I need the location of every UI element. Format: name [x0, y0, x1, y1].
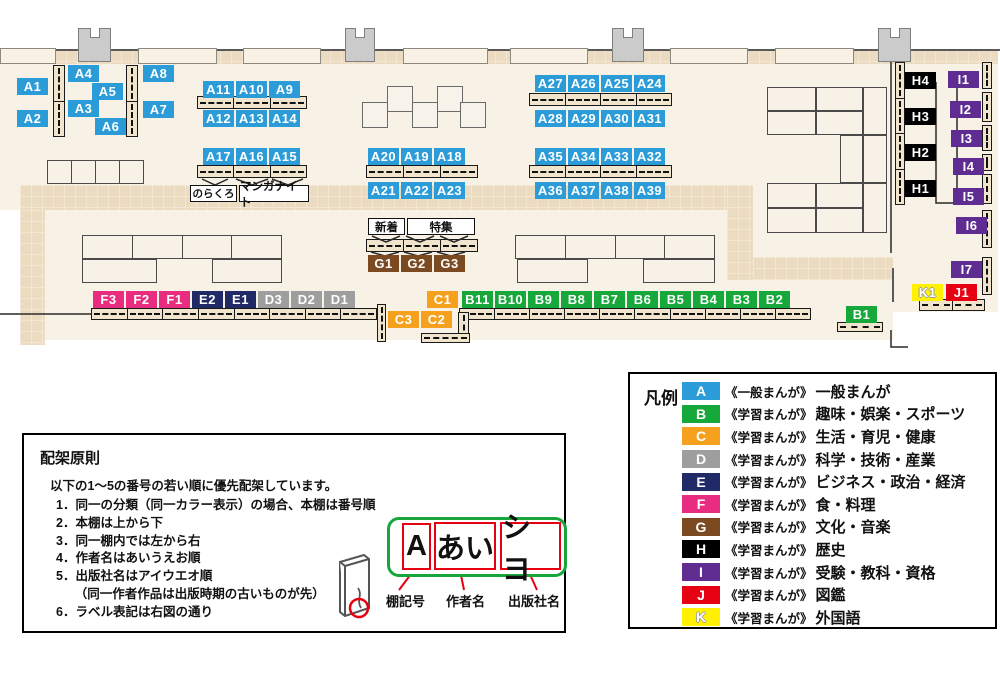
label-diagram-publisher: シヨ — [500, 522, 561, 570]
shelf-strip-segment — [530, 94, 565, 105]
shelf-strip-i7-wall — [982, 257, 992, 295]
shelf-label-A27: A27 — [535, 75, 566, 92]
table-cell — [841, 136, 862, 182]
shelf-label-A19: A19 — [401, 148, 432, 165]
shelf-strip-segment — [983, 93, 991, 121]
shelf-label-H3: H3 — [905, 108, 936, 125]
shelf-label-A14: A14 — [269, 110, 300, 127]
shelf-label-A2: A2 — [17, 110, 48, 127]
legend-chip-D: D — [682, 450, 720, 468]
shelf-block — [863, 183, 887, 233]
table-cell — [48, 161, 71, 183]
legend-category: 受験・教科・資格 — [816, 562, 936, 583]
pillar-notch — [355, 28, 365, 38]
shelf-label-A30: A30 — [601, 110, 632, 127]
shelf-strip-segment — [127, 309, 163, 319]
legend-row-D: D《学習まんが》科学・技術・産業 — [682, 448, 966, 471]
pillar-notch — [623, 28, 633, 38]
table-cell — [518, 260, 587, 282]
shelf-strip-segment — [636, 166, 672, 177]
wall-shelf — [403, 48, 488, 64]
shelf-label-A9: A9 — [269, 81, 300, 98]
shelf-strip-segment — [198, 309, 234, 319]
walkway-right-horiz — [753, 257, 893, 280]
legend-series: 《学習まんが》 — [725, 517, 813, 536]
legend-chip-E: E — [682, 473, 720, 491]
note-new-arrivals: 新着 — [368, 218, 405, 235]
principles-item: 2．本棚は上から下 — [56, 515, 375, 533]
legend-row-A: A《一般まんが》一般まんが — [682, 380, 966, 403]
shelf-strip-segment — [600, 94, 636, 105]
legend-series: 《学習まんが》 — [725, 608, 813, 627]
shelf-strip-b — [459, 308, 811, 320]
shelf-strip-segment — [269, 309, 305, 319]
shelf-strip-segment — [54, 66, 64, 101]
shelf-label-H1: H1 — [905, 180, 936, 197]
pillar — [878, 28, 911, 62]
legend-category: 一般まんが — [816, 381, 891, 402]
shelf-label-I5: I5 — [953, 188, 984, 205]
legend-row-B: B《学習まんが》趣味・娯楽・スポーツ — [682, 403, 966, 426]
principles-item: 3．同一棚内では左から右 — [56, 533, 375, 551]
legend-chip-F: F — [682, 495, 720, 513]
shelf-strip-segment — [634, 309, 669, 319]
walkway-right-vert — [727, 185, 753, 280]
shelf-label-G1: G1 — [368, 255, 399, 272]
shelf-label-I7: I7 — [951, 261, 982, 278]
shelf-strip-c2-bottom — [421, 333, 470, 343]
shelf-label-A29: A29 — [568, 110, 599, 127]
shelf-label-H2: H2 — [905, 144, 936, 161]
shelf-strip-segment — [983, 155, 991, 170]
book-icon — [328, 550, 388, 628]
table-cell — [132, 236, 182, 258]
shelf-strip-segment — [838, 323, 882, 331]
shelf-label-A23: A23 — [434, 182, 465, 199]
label-diagram-author: あい — [434, 522, 496, 570]
shelf-label-D3: D3 — [258, 291, 289, 308]
table-cell — [83, 236, 132, 258]
caption-author: 作者名 — [446, 591, 485, 610]
shelf-label-A18: A18 — [434, 148, 465, 165]
shelf-strip-segment — [127, 101, 137, 137]
legend-chip-H: H — [682, 540, 720, 558]
shelf-strip-segment — [983, 126, 991, 150]
shelf-strip-segment — [896, 133, 904, 169]
pillar-notch — [90, 28, 100, 38]
legend-series: 《一般まんが》 — [725, 382, 813, 401]
shelf-block — [767, 183, 816, 208]
shelf-strip-a15 — [197, 165, 307, 178]
floor-map-page: のらくろ マンガナイト 新着 特集 A1A2A4A5A3A6A8A7A11A10… — [0, 0, 1000, 700]
label-diagram-shelf-code: A — [402, 523, 431, 570]
shelf-label-H4: H4 — [905, 72, 936, 89]
shelf-strip-b1 — [837, 322, 883, 332]
shelf-label-J1: J1 — [946, 284, 977, 301]
shelf-label-A35: A35 — [535, 148, 566, 165]
shelf-strip-segment — [340, 309, 376, 319]
shelf-label-F1: F1 — [159, 291, 190, 308]
table-cell — [231, 236, 281, 258]
shelf-strip-segment — [705, 309, 740, 319]
shelf-strip-segment — [494, 309, 529, 319]
shelf-label-A8: A8 — [143, 65, 174, 82]
shelf-strip-a18 — [366, 165, 478, 178]
legend-series: 《学習まんが》 — [725, 404, 813, 423]
note-manganight: マンガナイト — [239, 185, 309, 202]
shelf-label-D1: D1 — [324, 291, 355, 308]
shelf-strip-segment — [670, 309, 705, 319]
table-cell — [864, 88, 886, 134]
table-cell — [864, 184, 886, 232]
principles-item: 1．同一の分類（同一カラー表示）の場合、本棚は番号順 — [56, 497, 375, 515]
table-cell — [71, 161, 95, 183]
caption-shelf-code: 棚記号 — [386, 591, 425, 610]
table-block — [515, 235, 715, 259]
shelf-label-F3: F3 — [93, 291, 124, 308]
shelf-strip-segment — [367, 166, 403, 177]
shelf-block — [816, 208, 863, 233]
table-cell — [213, 260, 281, 282]
shelf-label-A17: A17 — [203, 148, 234, 165]
table-cell — [817, 184, 862, 207]
shelf-strip-segment — [896, 169, 904, 205]
legend-series: 《学習まんが》 — [725, 450, 813, 469]
shelf-label-B10: B10 — [495, 291, 526, 308]
shelf-strip-segment — [198, 166, 233, 177]
legend-row-I: I《学習まんが》受験・教科・資格 — [682, 561, 966, 584]
legend-chip-B: B — [682, 405, 720, 423]
shelf-strip-segment — [403, 166, 440, 177]
legend-chip-A: A — [682, 382, 720, 400]
shelf-block — [816, 87, 863, 111]
wall-right-lower — [892, 268, 894, 302]
shelf-strip-a7 — [126, 65, 138, 137]
shelf-label-B8: B8 — [561, 291, 592, 308]
table-block — [47, 160, 144, 184]
table-square — [362, 102, 388, 128]
shelf-strip-segment — [896, 63, 904, 98]
table-block — [643, 259, 715, 283]
shelf-label-I4: I4 — [953, 158, 984, 175]
shelf-block — [840, 135, 863, 183]
legend-row-J: J《学習まんが》図鑑 — [682, 583, 966, 606]
shelf-strip-segment — [162, 309, 198, 319]
wall-shelf — [243, 48, 321, 64]
shelf-block — [863, 135, 887, 183]
legend-category: 図鑑 — [816, 584, 846, 605]
shelf-strip-segment — [127, 66, 137, 101]
shelf-strip-segment — [983, 175, 991, 203]
pillar — [612, 28, 644, 62]
shelf-label-A21: A21 — [368, 182, 399, 199]
shelf-label-A20: A20 — [368, 148, 399, 165]
shelf-strip-segment — [92, 309, 127, 319]
principles-intro: 以下の1～5の番号の若い順に優先配架しています。 — [50, 475, 337, 494]
shelf-label-B1: B1 — [846, 306, 877, 323]
shelf-strip-segment — [54, 101, 64, 137]
legend-category: 歴史 — [816, 539, 846, 560]
shelf-label-C2: C2 — [421, 311, 452, 328]
shelf-strip-segment — [983, 258, 991, 294]
legend-category: 科学・技術・産業 — [816, 449, 936, 470]
shelf-strip-segment — [600, 166, 636, 177]
table-cell — [95, 161, 119, 183]
shelf-strip-segment — [440, 166, 477, 177]
legend-series: 《学習まんが》 — [725, 495, 813, 514]
shelf-label-I1: I1 — [948, 71, 979, 88]
shelf-strip-segment — [234, 309, 270, 319]
legend-row-H: H《学習まんが》歴史 — [682, 538, 966, 561]
table-cell — [768, 184, 815, 207]
shelf-strip-segment — [233, 97, 269, 108]
legend-title: 凡例 — [644, 384, 678, 409]
shelf-strip-segment — [440, 240, 477, 251]
shelf-label-I3: I3 — [951, 130, 982, 147]
shelf-label-A37: A37 — [568, 182, 599, 199]
shelf-label-G2: G2 — [401, 255, 432, 272]
table-cell — [817, 88, 862, 110]
shelf-label-A33: A33 — [601, 148, 632, 165]
shelf-strip-segment — [305, 309, 341, 319]
legend-category: 生活・育児・健康 — [816, 426, 936, 447]
legend-category: 食・料理 — [816, 494, 876, 515]
legend-row-C: C《学習まんが》生活・育児・健康 — [682, 425, 966, 448]
shelf-label-B9: B9 — [528, 291, 559, 308]
shelf-label-A25: A25 — [601, 75, 632, 92]
legend-row-E: E《学習まんが》ビジネス・政治・経済 — [682, 470, 966, 493]
wall-shelf — [775, 48, 854, 64]
note-feature: 特集 — [407, 218, 475, 235]
shelf-label-E2: E2 — [192, 291, 223, 308]
shelf-strip-segment — [422, 334, 469, 342]
walkway-left — [20, 210, 45, 345]
shelf-strip-segment — [270, 166, 306, 177]
table-cell — [182, 236, 232, 258]
table-cell — [516, 236, 565, 258]
shelf-label-A1: A1 — [17, 78, 48, 95]
shelf-strip-g — [366, 239, 478, 252]
wall-shelf — [0, 48, 56, 64]
legend-row-G: G《学習まんが》文化・音楽 — [682, 516, 966, 539]
legend-series: 《学習まんが》 — [725, 427, 813, 446]
table-cell — [83, 260, 156, 282]
table-square — [412, 102, 438, 128]
legend-category: 外国語 — [816, 607, 861, 628]
shelf-strip-i-wall — [982, 125, 992, 151]
wall-shelf — [510, 48, 588, 64]
shelf-strip-segment — [983, 63, 991, 88]
shelf-strip-i-wall — [982, 92, 992, 122]
shelf-strip-segment — [740, 309, 775, 319]
shelf-strip-segment — [367, 240, 403, 251]
shelf-label-A36: A36 — [535, 182, 566, 199]
shelf-strip-c3 — [377, 304, 386, 342]
shelf-block — [767, 87, 816, 111]
shelf-strip-segment — [378, 305, 385, 341]
shelf-label-A34: A34 — [568, 148, 599, 165]
legend-chip-G: G — [682, 518, 720, 536]
legend-series: 《学習まんが》 — [725, 563, 813, 582]
shelf-label-I6: I6 — [956, 217, 987, 234]
shelf-strip-segment — [896, 98, 904, 134]
shelf-label-K1: K1 — [912, 284, 943, 301]
pillar-notch — [890, 28, 900, 38]
shelf-label-A10: A10 — [236, 81, 267, 98]
shelf-strip-segment — [565, 166, 601, 177]
shelf-strip-a1 — [53, 65, 65, 137]
shelf-label-D2: D2 — [291, 291, 322, 308]
shelf-label-A26: A26 — [568, 75, 599, 92]
shelf-label-A3: A3 — [68, 100, 99, 117]
shelf-block — [816, 183, 863, 208]
shelf-strip-i-wall — [982, 62, 992, 89]
shelf-label-A24: A24 — [634, 75, 665, 92]
legend-chip-C: C — [682, 427, 720, 445]
shelf-label-B11: B11 — [462, 291, 493, 308]
shelf-label-A22: A22 — [401, 182, 432, 199]
shelf-strip-segment — [564, 309, 599, 319]
note-norakuro: のらくろ — [190, 185, 237, 202]
shelf-strip-h-wall — [895, 62, 905, 205]
principles-title: 配架原則 — [40, 447, 100, 468]
legend-series: 《学習まんが》 — [725, 540, 813, 559]
shelf-label-A15: A15 — [269, 148, 300, 165]
shelf-label-B6: B6 — [627, 291, 658, 308]
table-block — [82, 235, 282, 259]
shelf-label-A12: A12 — [203, 110, 234, 127]
shelf-label-A16: A16 — [236, 148, 267, 165]
legend-category: ビジネス・政治・経済 — [816, 471, 966, 492]
shelf-label-G3: G3 — [434, 255, 465, 272]
shelf-strip-a24 — [529, 93, 672, 106]
legend-row-K: K《学習まんが》外国語 — [682, 606, 966, 629]
table-cell — [817, 112, 862, 134]
shelf-label-E1: E1 — [225, 291, 256, 308]
shelf-block — [863, 87, 887, 135]
shelf-label-F2: F2 — [126, 291, 157, 308]
shelf-label-C3: C3 — [388, 311, 419, 328]
shelf-strip-segment — [636, 94, 672, 105]
legend-chip-I: I — [682, 563, 720, 581]
table-cell — [768, 88, 815, 110]
shelf-label-B3: B3 — [726, 291, 757, 308]
table-cell — [644, 260, 714, 282]
shelf-strip-a32 — [529, 165, 672, 178]
shelf-strip-segment — [775, 309, 810, 319]
table-cell — [768, 112, 815, 134]
legend-row-F: F《学習まんが》食・料理 — [682, 493, 966, 516]
shelf-strip-segment — [270, 97, 306, 108]
table-square — [387, 86, 413, 112]
shelf-strip-segment — [403, 240, 440, 251]
shelf-label-A4: A4 — [68, 65, 99, 82]
caption-publisher: 出版社名 — [508, 591, 560, 610]
shelf-label-B5: B5 — [660, 291, 691, 308]
shelf-label-A5: A5 — [92, 83, 123, 100]
shelf-label-A32: A32 — [634, 148, 665, 165]
legend-chip-J: J — [682, 586, 720, 604]
shelf-strip-segment — [198, 97, 233, 108]
shelf-label-A6: A6 — [95, 118, 126, 135]
shelf-strip-segment — [530, 166, 565, 177]
shelf-block — [767, 111, 816, 135]
table-cell — [119, 161, 143, 183]
table-cell — [864, 136, 886, 182]
table-block — [82, 259, 157, 283]
shelf-label-B4: B4 — [693, 291, 724, 308]
legend-series: 《学習まんが》 — [725, 585, 813, 604]
table-block — [517, 259, 588, 283]
shelf-label-A28: A28 — [535, 110, 566, 127]
pillar — [345, 28, 375, 62]
legend-chip-K: K — [682, 608, 720, 626]
table-cell — [565, 236, 615, 258]
shelf-label-A11: A11 — [203, 81, 234, 98]
table-block — [212, 259, 282, 283]
table-cell — [768, 209, 815, 232]
shelf-strip-segment — [565, 94, 601, 105]
table-square — [460, 102, 486, 128]
shelf-block — [767, 208, 816, 233]
shelf-strip-fed — [91, 308, 377, 320]
shelf-label-A7: A7 — [143, 101, 174, 118]
shelf-strip-segment — [952, 300, 985, 310]
shelf-strip-segment — [529, 309, 564, 319]
shelf-block — [816, 111, 863, 135]
shelf-label-B7: B7 — [594, 291, 625, 308]
shelf-label-A38: A38 — [601, 182, 632, 199]
shelf-strip-segment — [599, 309, 634, 319]
legend-rows: A《一般まんが》一般まんがB《学習まんが》趣味・娯楽・スポーツC《学習まんが》生… — [682, 380, 966, 629]
shelf-label-A31: A31 — [634, 110, 665, 127]
legend-category: 趣味・娯楽・スポーツ — [816, 403, 966, 424]
shelf-label-C1: C1 — [427, 291, 458, 308]
wall-right — [890, 50, 892, 253]
table-cell — [664, 236, 714, 258]
wall-shelf — [670, 48, 748, 64]
table-cell — [817, 209, 862, 232]
table-cell — [615, 236, 665, 258]
pillar — [78, 28, 111, 62]
shelf-label-A39: A39 — [634, 182, 665, 199]
shelf-strip-segment — [920, 300, 952, 310]
wall-shelf — [138, 48, 217, 64]
shelf-label-I2: I2 — [950, 101, 981, 118]
legend-category: 文化・音楽 — [816, 516, 891, 537]
legend-box: 凡例 A《一般まんが》一般まんがB《学習まんが》趣味・娯楽・スポーツC《学習まん… — [628, 372, 997, 629]
shelf-label-A13: A13 — [236, 110, 267, 127]
legend-series: 《学習まんが》 — [725, 472, 813, 491]
shelf-strip-segment — [233, 166, 269, 177]
shelf-label-B2: B2 — [759, 291, 790, 308]
